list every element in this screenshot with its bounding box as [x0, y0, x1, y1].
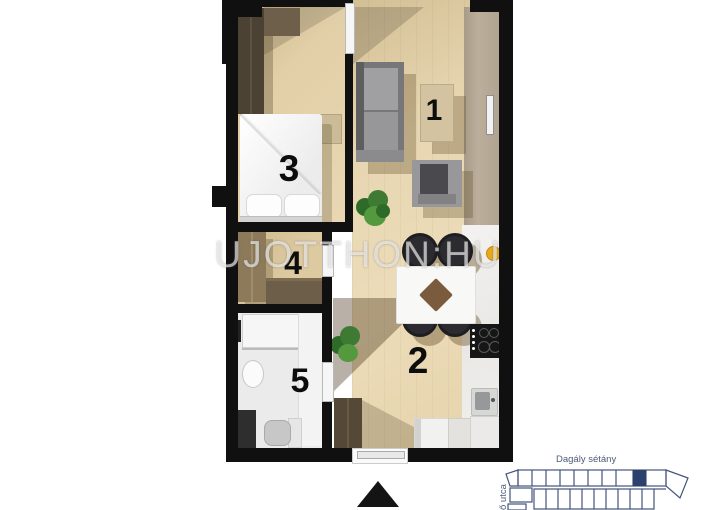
kitchen-island — [448, 418, 472, 452]
entrance-door — [352, 448, 408, 464]
wall — [226, 304, 332, 313]
washing-machine — [238, 410, 256, 448]
bed-pillow — [284, 194, 320, 218]
room-label-kitchen: 2 — [398, 342, 438, 379]
faucet — [491, 398, 495, 402]
toilet — [264, 420, 291, 446]
bathroom-door — [322, 362, 334, 402]
entrance-arrow-icon — [357, 481, 399, 507]
hall-dresser — [266, 278, 322, 305]
entrance-door-leaf — [357, 451, 405, 459]
minimap-street-top-label: Dagály sétány — [556, 454, 616, 465]
burner — [479, 328, 489, 338]
wall — [212, 186, 227, 207]
wall — [470, 0, 513, 12]
wall — [322, 400, 332, 448]
plant — [328, 326, 364, 364]
floor-plan: 1 2 3 4 5 UJOTTHON:HU — [0, 0, 720, 510]
minimap-street-left-label: ő utca — [498, 468, 509, 510]
bedroom-door — [345, 3, 355, 54]
bathroom-sink — [242, 360, 264, 388]
burner — [489, 328, 499, 338]
armchair — [412, 160, 462, 207]
floorplan-canvas: 1 2 3 4 5 UJOTTHON:HU Dagály sétány ő ut… — [0, 0, 720, 510]
nightstand — [320, 114, 342, 144]
table-centerpiece — [419, 278, 453, 312]
location-minimap: Dagály sétány ő utca — [498, 452, 718, 510]
wall — [226, 222, 353, 232]
wall — [406, 448, 513, 462]
bed-pillow — [246, 194, 282, 218]
wall — [322, 275, 332, 362]
wall — [226, 448, 352, 462]
kitchen-island — [414, 418, 450, 450]
tv — [486, 95, 494, 135]
wall — [345, 52, 353, 228]
wall — [499, 0, 513, 462]
kitchen-sink — [471, 388, 498, 416]
sofa — [356, 62, 404, 162]
bedroom-wardrobe — [238, 8, 264, 114]
watermark: UJOTTHON:HU — [200, 234, 516, 276]
bedroom-top-cabinet — [264, 8, 300, 36]
cooktop — [470, 324, 499, 358]
entry-wardrobe — [334, 398, 362, 448]
plant — [354, 190, 392, 228]
room-label-bedroom: 3 — [269, 150, 309, 187]
minimap-highlight-unit — [633, 470, 646, 486]
room-label-living: 1 — [414, 96, 454, 126]
room-label-bathroom: 5 — [280, 364, 320, 398]
kitchen-corner-cabinet — [470, 416, 500, 450]
